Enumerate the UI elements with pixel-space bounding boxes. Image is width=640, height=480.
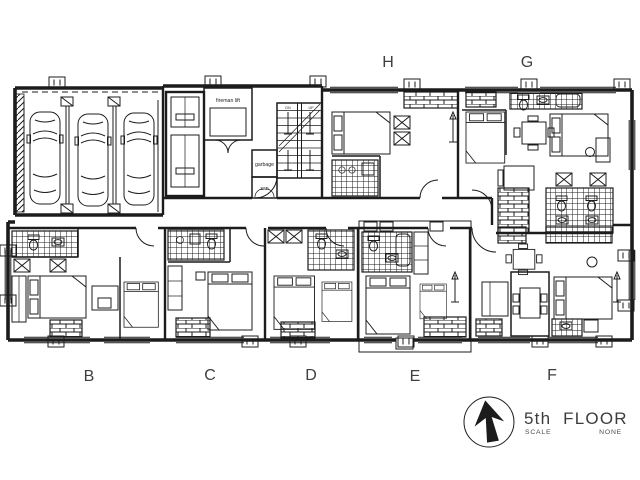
title-block: 5th FLOOR PLAN SCALE NONE [464,397,640,447]
balcony [476,319,502,336]
stair-up-label: UP [309,106,315,110]
staircase: DN UP [277,103,322,178]
table [506,244,542,275]
garage [16,92,160,213]
bed [420,284,446,319]
balcony [50,320,82,337]
dining-table [520,288,540,318]
unit-b [12,228,158,340]
wardrobe [14,259,30,272]
unit-c [165,228,252,340]
bed [466,112,505,163]
north-arrow-icon [464,397,514,447]
wardrobe [394,116,410,129]
bed [366,276,410,334]
wardrobe [590,173,606,186]
bed [208,272,252,330]
unit-label-h: H [382,54,394,71]
plan-title: 5th FLOOR PLAN [524,409,640,428]
wardrobe [168,266,182,310]
garbage-room: garbage [252,150,277,177]
elevator-core [166,92,204,196]
car [121,113,157,205]
fireman-lift-label: fireman lift [216,98,240,104]
unit-label-e: E [410,368,421,385]
wardrobe [414,232,428,274]
unit-label-g: G [521,54,533,71]
fireman-lift-room: fireman lift [204,88,252,153]
passage-arrow-icon [449,112,457,142]
bed [550,114,608,156]
wall-columns [0,76,634,347]
unit-label-d: D [305,367,317,384]
bed [28,276,86,318]
unit-h [332,92,458,198]
bed [274,276,314,329]
balcony [176,318,210,337]
bed [332,112,390,154]
dining-table [514,116,554,150]
unit-label-b: B [84,368,95,385]
passage-arrow-icon [613,272,621,302]
exterior-walls [8,86,632,340]
bathroom [12,231,78,257]
passage-arrow-icon [451,272,459,302]
unit-f [476,227,621,336]
wardrobe [50,259,66,272]
unit-label-f: F [547,367,557,384]
wardrobe [556,173,572,186]
car [75,114,111,206]
closet [286,230,302,243]
balcony [424,317,466,337]
unit-g [462,92,613,233]
bed [554,277,612,319]
closet [268,230,284,243]
sofa [482,282,508,316]
stair-down-label: DN [285,106,291,110]
wardrobe [394,132,410,145]
garbage-label: garbage [255,162,274,168]
scale-label: SCALE [525,429,551,436]
bed [124,282,158,327]
bathroom [546,188,613,233]
unit-label-c: C [204,367,216,384]
car [27,112,63,204]
unit-e [358,222,470,349]
terrace [498,188,529,233]
kitchen-area [332,160,378,196]
scale-value: NONE [599,429,622,436]
floor-plan-canvas: fireman lift garbage san DN UP [0,0,640,480]
dining-room [511,272,549,336]
bed [322,282,352,321]
unit-d [265,228,354,340]
floor-plan-drawing: fireman lift garbage san DN UP [0,0,640,480]
